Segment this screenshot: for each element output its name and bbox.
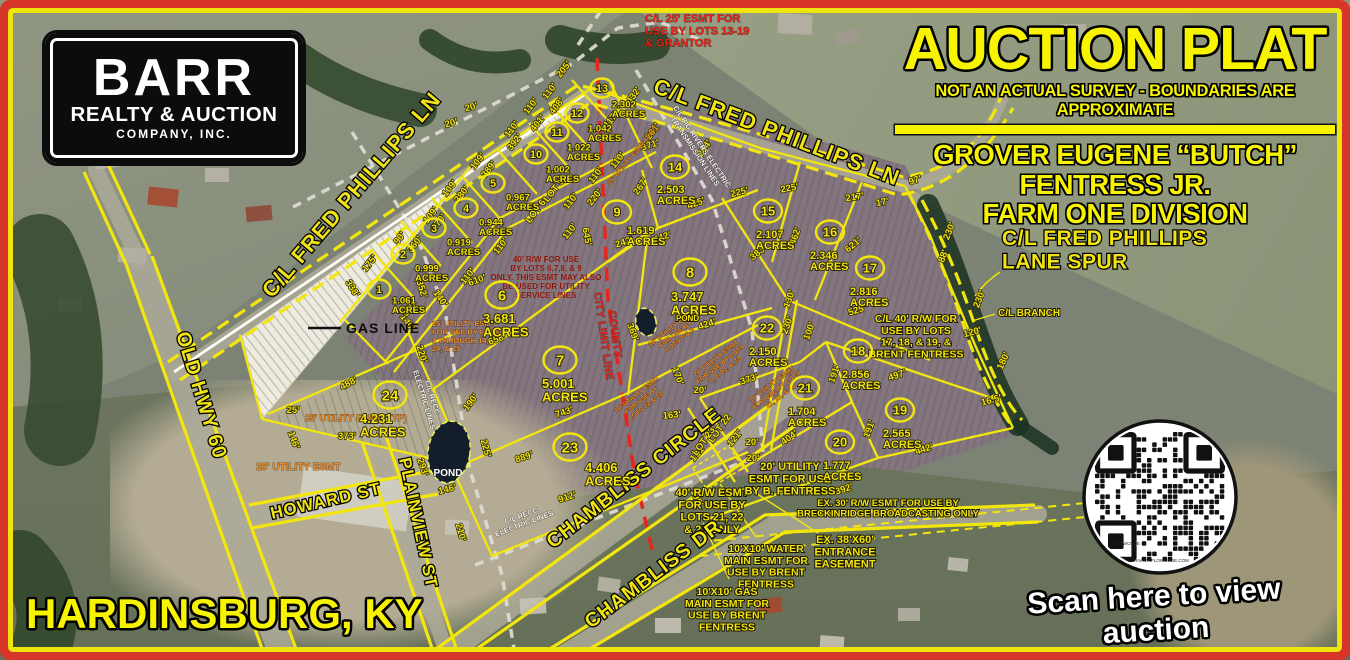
qr-finder-dot [1196,445,1212,461]
dimension-label: 404' [779,428,800,447]
qr-module [1173,536,1177,540]
qr-module [1168,489,1172,493]
qr-module [1152,448,1156,452]
qr-module [1131,474,1135,478]
barr-realty-logo: BARR REALTY & AUCTION COMPANY, INC. [45,33,303,163]
qr-module [1194,552,1198,556]
qr-module [1173,432,1177,436]
tree-cluster [1018,425,1052,448]
building [245,205,272,222]
qr-module [1116,494,1120,498]
qr-module [1105,494,1109,498]
qr-module [1199,510,1203,514]
qr-module [1152,552,1156,556]
building [147,186,179,207]
dimension-label: 20' [746,437,759,448]
dimension-label: 110' [491,236,510,257]
qr-module [1178,531,1182,535]
qr-module [1183,510,1187,514]
lot-number: 12 [571,108,583,120]
qr-module [1209,510,1213,514]
building [835,29,858,45]
qr-module [1189,536,1193,540]
qr-module [1215,500,1219,504]
dimension-label: 225' [780,182,800,196]
qr-module [1137,489,1141,493]
qr-module [1163,510,1167,514]
qr-module [1095,500,1099,504]
lot-acreage: 3.681ACRES [483,311,529,339]
lot-acreage: 2.565ACRES [883,428,922,451]
qr-module [1173,437,1177,441]
tree-cluster [560,40,655,49]
qr-module [1209,489,1213,493]
qr-module [1163,541,1167,545]
qr-module [1137,505,1141,509]
lot-number: 19 [893,403,907,418]
qr-finder-dot [1108,445,1124,461]
lot-acreage: 3.747ACRES [671,289,717,317]
qr-module [1100,484,1104,488]
qr-module [1157,489,1161,493]
lot-number: 20 [833,435,847,450]
dimension-label: 373' [338,431,356,442]
qr-module [1152,515,1156,519]
qr-module [1157,541,1161,545]
qr-module [1183,546,1187,550]
qr-module [1163,536,1167,540]
qr-module [1105,510,1109,514]
dimension-label: 205' [554,59,574,80]
dimension-label: 17' [875,196,890,209]
qr-module [1220,494,1224,498]
qr-module [1178,526,1182,530]
qr-module [1137,468,1141,472]
qr-module [1126,474,1130,478]
lot-acreage: 2.856ACRES [842,369,881,392]
qr-module [1168,437,1172,441]
qr-module [1173,531,1177,535]
lot-acreage: 1.704ACRES [788,406,827,429]
lot-acreage: 1.002ACRES [546,165,579,186]
qr-module [1105,474,1109,478]
qr-module [1147,489,1151,493]
qr-module [1178,510,1182,514]
lot-acreage: 0.919ACRES [447,238,480,259]
building [820,635,845,651]
qr-module [1194,510,1198,514]
qr-module [1220,474,1224,478]
tree-cluster [430,40,520,63]
qr-module [1173,515,1177,519]
qr-module [1220,489,1224,493]
lot-number: 15 [761,204,775,219]
qr-module [1178,489,1182,493]
qr-module [1189,552,1193,556]
note-text: 25' UTILITY ESMT [256,462,340,473]
dimension-label: 912' [557,490,578,506]
qr-module [1157,505,1161,509]
qr-module [1147,458,1151,462]
lot-acreage: 2.150ACRES [749,346,788,369]
qr-module [1152,474,1156,478]
note-text: C/L BRANCH [998,308,1060,319]
dimension-label: 392' [834,482,855,498]
note-text: C/L FRED PHILLIPSLANE SPUR [1002,227,1207,274]
dimension-label: 190' [461,392,481,413]
qr-module [1173,448,1177,452]
qr-module [1178,546,1182,550]
auction-plat-poster: 20'20'205'175'338'90'360'352'140'140'220… [0,0,1350,660]
qr-module [1173,484,1177,488]
qr-module [1142,531,1146,535]
qr-module [1111,474,1115,478]
qr-module [1168,552,1172,556]
owner-name: GROVER EUGENE “BUTCH” FENTRESS JR. [893,140,1337,199]
lot-number: 21 [798,381,812,396]
lot-acreage: 1.042ACRES [588,124,621,145]
tree-cluster [300,60,420,110]
qr-module [1100,494,1104,498]
lot-acreage: 2.107ACRES [756,229,795,252]
building [947,557,968,572]
building [898,608,920,621]
dimension-label: 217' [845,191,864,204]
qr-module [1168,505,1172,509]
qr-module [1116,489,1120,493]
qr-module [1095,489,1099,493]
qr-module [1147,520,1151,524]
qr-module [1137,510,1141,514]
lot-number: 23 [562,439,579,456]
dimension-label: 170' [669,366,686,387]
dimension-label: 180' [995,350,1013,371]
lot-acreage: 2.503ACRES [657,184,696,207]
title-disclaimer: NOT AN ACTUAL SURVEY - BOUNDARIES ARE AP… [893,82,1337,120]
qr-module [1168,500,1172,504]
note-text: 20' UTILITYESMT FOR USEBY B. FENTRESS [745,461,836,498]
building [205,168,229,182]
qr-module [1142,526,1146,530]
logo-line3: COMPANY, INC. [116,127,232,141]
qr-module [1215,531,1219,535]
qr-module [1173,489,1177,493]
dimension-label: 230' [779,315,796,336]
qr-module [1209,500,1213,504]
lot-acreage: 0.999ACRES [415,264,448,285]
qr-module [1173,494,1177,498]
lot-acreage: 2.346ACRES [810,250,849,273]
qr-module [1199,500,1203,504]
qr-module [1147,479,1151,483]
lot-number: 8 [686,264,694,281]
qr-module [1194,546,1198,550]
title-divider-bar [895,125,1335,134]
dimension-label: 20' [747,453,760,464]
qr-module [1121,479,1125,483]
qr-code: FLOWCODEPRIVACY.FLOWCODE.COM [1084,421,1236,573]
qr-module [1163,494,1167,498]
lot-acreage: 0.944ACRES [479,218,512,239]
qr-module [1204,500,1208,504]
qr-module [1147,468,1151,472]
lot-acreage: 2.302ACRES [612,100,645,121]
note-text: 10'X10' GASMAIN ESMT FORUSE BY BRENTFENT… [685,586,769,633]
qr-module [1215,510,1219,514]
qr-module [1168,484,1172,488]
lot-acreage: 5.001ACRES [542,376,588,404]
qr-module [1178,458,1182,462]
dimension-label: 621' [843,235,864,255]
qr-module [1147,474,1151,478]
qr-module [1095,474,1099,478]
qr-module [1215,526,1219,530]
qr-module [1189,541,1193,545]
dimension-label: 20' [694,385,707,396]
qr-module [1116,510,1120,514]
qr-module [1189,526,1193,530]
qr-module [1189,531,1193,535]
qr-module [1220,515,1224,519]
qr-module [1137,531,1141,535]
qr-module [1215,494,1219,498]
qr-module [1142,468,1146,472]
qr-module [1204,515,1208,519]
qr-module [1142,489,1146,493]
dimension-label: 100' [801,321,818,342]
lot-number: 11 [551,127,563,139]
building [655,618,681,633]
lot-acreage: 2.816ACRES [850,286,889,309]
lot-number: 6 [498,287,506,304]
qr-module [1178,432,1182,436]
lot-number: 10 [530,149,542,161]
qr-module [1157,458,1161,462]
dimension-label: 645' [579,227,593,247]
qr-module [1116,505,1120,509]
lot-boundary-line [800,342,826,362]
dimension-label: 20' [444,117,459,131]
qr-module [1173,510,1177,514]
qr-module [1147,531,1151,535]
dimension-label: 225' [729,185,749,200]
qr-module [1204,531,1208,535]
lot-number: 18 [851,344,865,359]
qr-module [1209,474,1213,478]
qr-module [1152,500,1156,504]
lot-acreage: 4.406ACRES [585,460,631,488]
qr-module [1137,437,1141,441]
qr-module [1183,500,1187,504]
qr-module [1163,437,1167,441]
dimension-label: 110' [560,221,579,242]
note-text: EX. 38'X60'ENTRANCEEASEMENT [814,534,875,571]
dimension-label: 889' [514,450,535,466]
qr-module [1163,526,1167,530]
qr-module [1178,484,1182,488]
qr-module [1163,484,1167,488]
qr-module [1163,468,1167,472]
qr-module [1178,468,1182,472]
building [519,597,546,615]
note-text: C/L 40' R/W FORUSE BY LOTS17, 18, & 19, … [868,313,963,360]
note-text: 40' R/W FOR USEBY LOTS 6,7,8, & 9ONLY. T… [491,255,602,300]
qr-module [1121,484,1125,488]
dimension-label: 191' [826,364,843,385]
qr-module [1147,505,1151,509]
note-text: EX. 30' R/W ESMT FOR USE BYBRECKINRIDGE … [797,498,979,520]
qr-module [1137,520,1141,524]
qr-module [1173,453,1177,457]
tree-cluster [40,250,67,430]
lot-number: 9 [613,205,620,220]
qr-module [1100,505,1104,509]
qr-module [1194,484,1198,488]
qr-module [1199,489,1203,493]
qr-module [1137,453,1141,457]
dimension-label: 110' [561,191,580,212]
qr-module [1147,515,1151,519]
qr-module [1152,505,1156,509]
lot-acreage: 1.777ACRES [823,460,862,483]
dimension-label: 191' [861,419,878,440]
qr-module [1183,505,1187,509]
qr-privacy-text: PRIVACY.FLOWCODE.COM [1131,558,1189,563]
qr-module [1199,546,1203,550]
dimension-label: 146' [285,430,302,451]
qr-module [1131,489,1135,493]
qr-module [1152,442,1156,446]
qr-module [1199,536,1203,540]
dimension-label: 424' [697,317,718,333]
qr-module [1157,520,1161,524]
lot-number: 16 [823,225,837,240]
qr-module [1137,494,1141,498]
lot-number: 24 [382,387,399,404]
dimension-label: 20' [464,101,479,115]
qr-module [1199,505,1203,509]
qr-module [1204,536,1208,540]
qr-module [1209,505,1213,509]
qr-module [1100,500,1104,504]
qr-module [1183,520,1187,524]
lot-number: 13 [596,83,608,95]
qr-module [1199,479,1203,483]
lot-number: 7 [556,352,564,369]
qr-brand-text: FLOWCODE [1114,541,1140,546]
qr-module [1220,484,1224,488]
qr-module [1163,500,1167,504]
qr-module [1183,479,1187,483]
qr-module [1105,505,1109,509]
qr-module [1215,474,1219,478]
qr-module [1137,458,1141,462]
qr-module [1204,474,1208,478]
qr-module [1163,474,1167,478]
qr-module [1189,520,1193,524]
note-text: POND [434,468,463,479]
qr-module [1142,505,1146,509]
qr-module [1199,541,1203,545]
dimension-label: 497' [887,368,908,384]
qr-module [1209,479,1213,483]
lot-number: 2 [400,249,406,261]
qr-module [1147,463,1151,467]
qr-module [1183,515,1187,519]
note-text: GAS LINE [346,320,420,336]
qr-module [1183,489,1187,493]
qr-module [1204,484,1208,488]
qr-module [1209,526,1213,530]
qr-module [1189,479,1193,483]
dimension-label: 25' [287,405,300,416]
qr-module [1173,526,1177,530]
qr-module [1157,500,1161,504]
logo-line1: BARR [93,55,255,103]
qr-module [1173,474,1177,478]
lot-acreage: 1.022ACRES [567,143,600,164]
lot-number: 22 [760,321,774,336]
qr-module [1173,468,1177,472]
farm-division: FARM ONE DIVISION [893,199,1337,229]
qr-module [1157,510,1161,514]
qr-module [1189,505,1193,509]
lot-number: 3 [431,223,437,235]
note-text: 10'X10' WATERMAIN ESMT FORUSE BY BRENTFE… [724,543,808,590]
qr-module [1189,546,1193,550]
qr-module [1100,479,1104,483]
qr-module [1121,515,1125,519]
lot-number: 14 [668,160,683,175]
city-label: HARDINSBURG, KY [26,590,423,638]
page-title: AUCTION PLAT [893,20,1337,79]
qr-module [1137,500,1141,504]
qr-module [1189,500,1193,504]
lot-number: 4 [463,203,470,215]
qr-module [1137,474,1141,478]
qr-module [1142,479,1146,483]
qr-module [1142,448,1146,452]
dimension-label: 163' [662,409,681,422]
qr-module [1183,531,1187,535]
qr-module [1157,448,1161,452]
lot-number: 5 [490,178,496,190]
qr-module [1152,526,1156,530]
qr-module [1204,526,1208,530]
qr-module [1142,437,1146,441]
qr-module [1163,458,1167,462]
qr-module [1173,458,1177,462]
qr-module [1095,484,1099,488]
qr-module [1147,536,1151,540]
qr-module [1152,531,1156,535]
qr-module [1199,531,1203,535]
qr-module [1173,541,1177,545]
qr-module [1100,515,1104,519]
qr-module [1142,541,1146,545]
qr-module [1100,474,1104,478]
title-block: AUCTION PLAT NOT AN ACTUAL SURVEY - BOUN… [893,20,1337,229]
qr-module [1220,526,1224,530]
qr-module [1168,494,1172,498]
qr-module [1137,448,1141,452]
qr-module [1163,442,1167,446]
qr-module [1204,541,1208,545]
qr-module [1142,494,1146,498]
qr-module [1189,489,1193,493]
dimension-label: 225' [478,438,493,458]
qr-module [1173,546,1177,550]
